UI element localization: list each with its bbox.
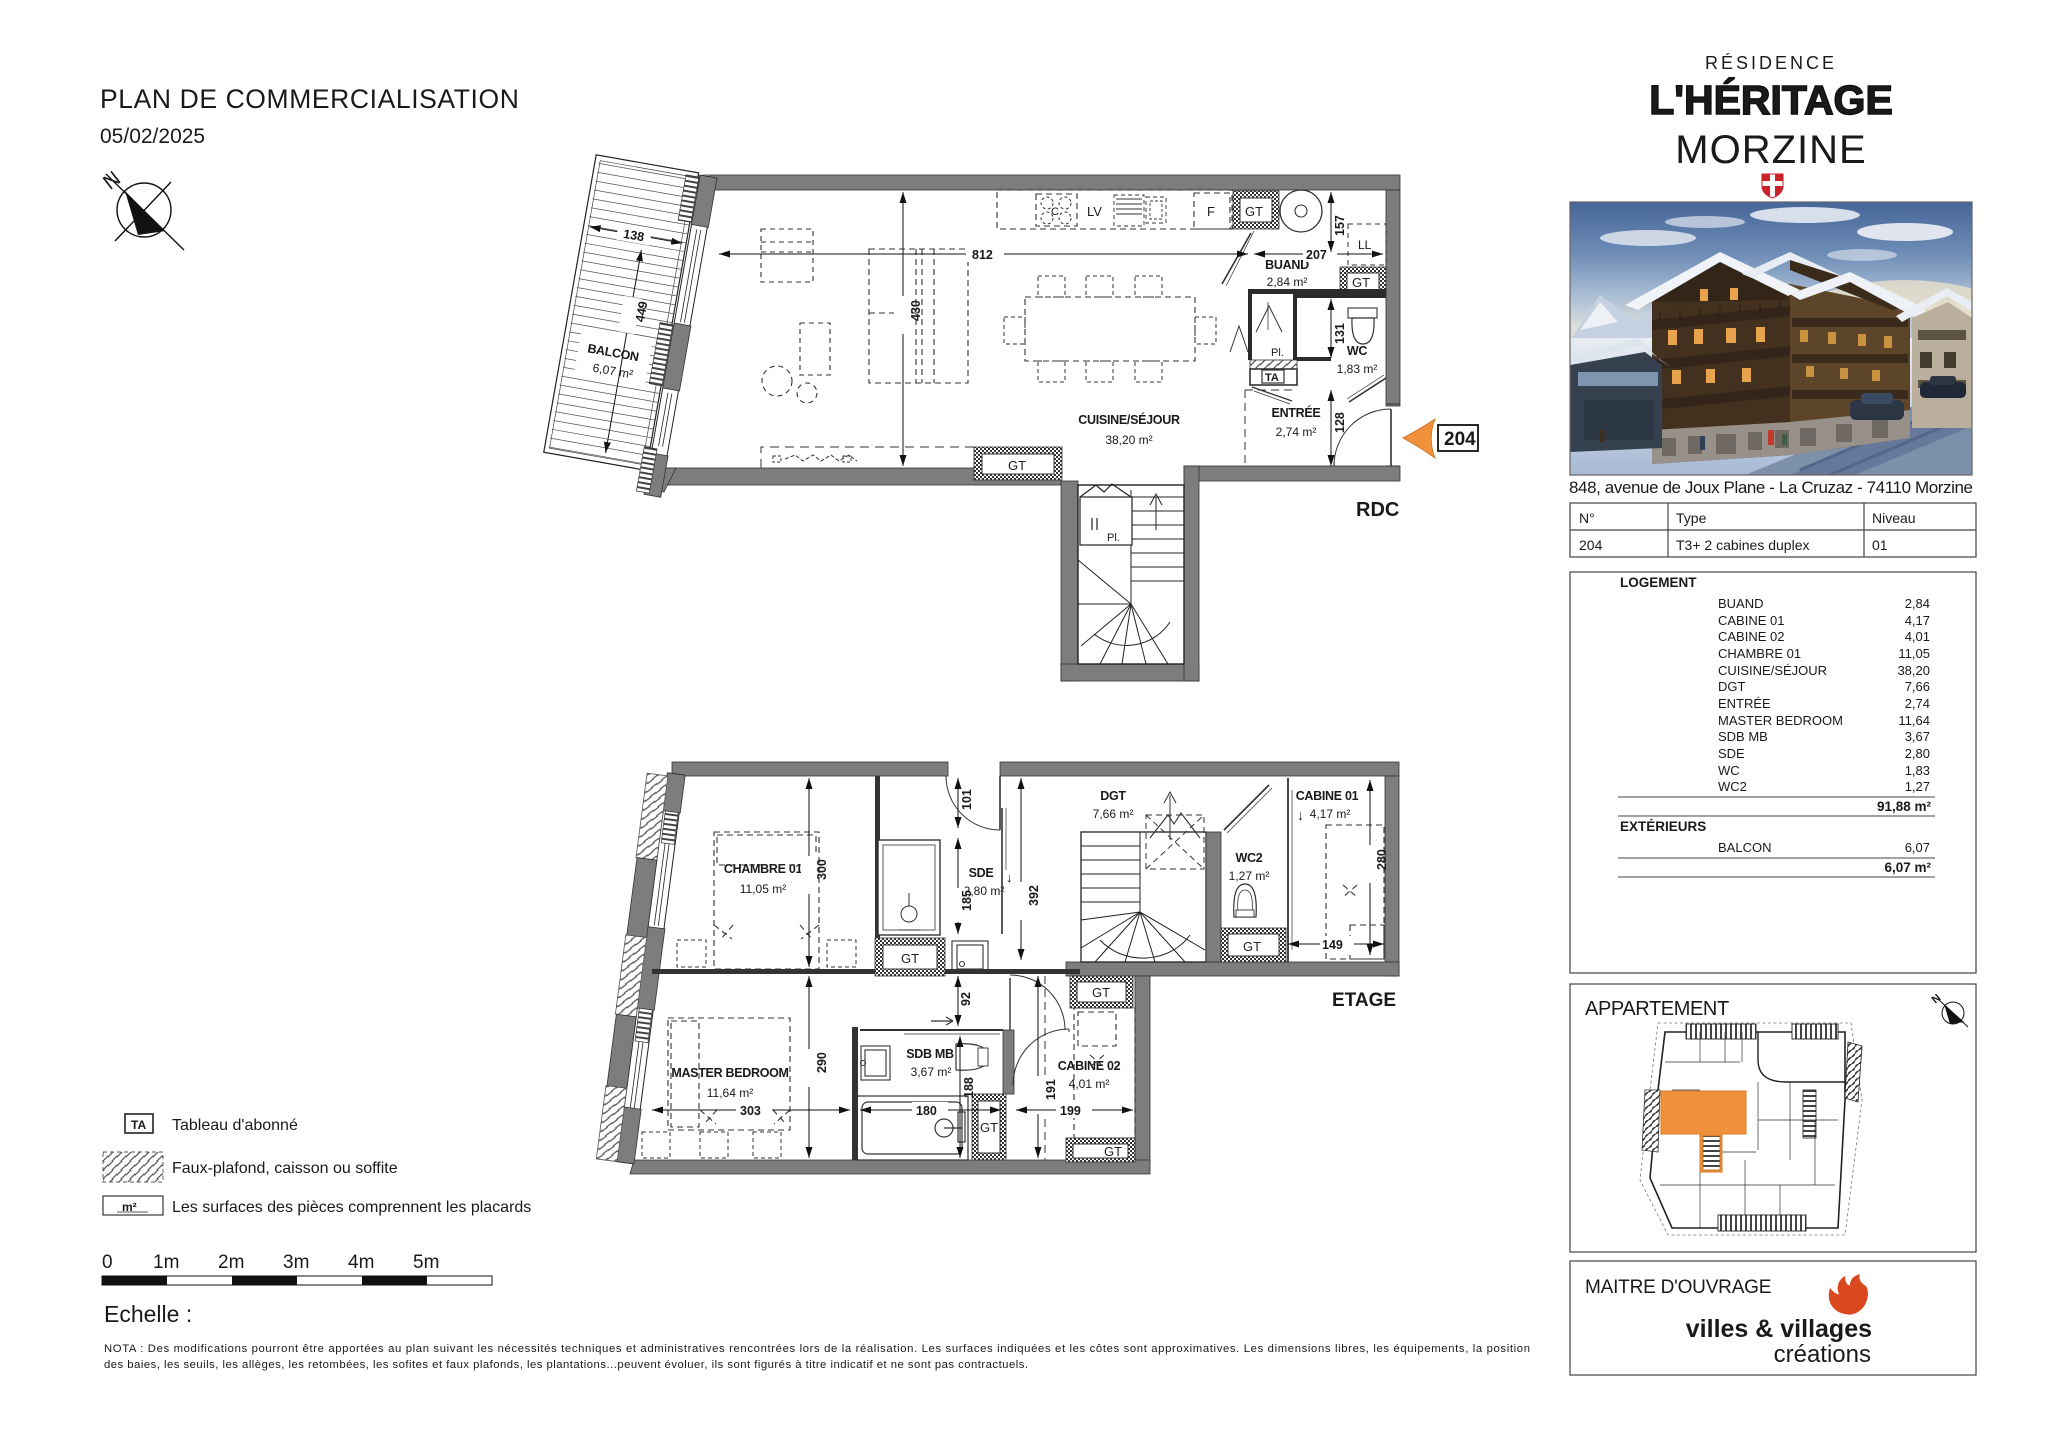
svg-text:CHAMBRE 01: CHAMBRE 01: [724, 862, 803, 876]
svg-text:↓: ↓: [1006, 870, 1013, 885]
svg-text:DGT: DGT: [1718, 679, 1746, 694]
svg-text:Pl.: Pl.: [1271, 347, 1284, 359]
svg-text:TA: TA: [131, 1118, 146, 1132]
svg-text:3m: 3m: [283, 1252, 309, 1273]
svg-text:WC: WC: [1718, 763, 1740, 778]
svg-text:207: 207: [1306, 248, 1327, 262]
svg-text:CUISINE/SÉJOUR: CUISINE/SÉJOUR: [1078, 412, 1180, 427]
svg-text:4,01: 4,01: [1905, 629, 1930, 644]
svg-text:LL: LL: [1358, 238, 1372, 252]
svg-text:4,01 m²: 4,01 m²: [1069, 1077, 1110, 1091]
svg-text:6,07 m²: 6,07 m²: [1884, 860, 1931, 875]
svg-text:Niveau: Niveau: [1872, 510, 1916, 526]
svg-text:ENTRÉE: ENTRÉE: [1272, 405, 1321, 420]
svg-text:4,17: 4,17: [1905, 613, 1930, 628]
svg-text:WC2: WC2: [1718, 779, 1747, 794]
svg-text:BALCON: BALCON: [1718, 840, 1771, 855]
svg-text:1,27 m²: 1,27 m²: [1229, 869, 1270, 883]
svg-text:LOGEMENT: LOGEMENT: [1620, 575, 1697, 590]
svg-text:WC: WC: [1347, 344, 1367, 358]
svg-text:4m: 4m: [348, 1252, 374, 1273]
svg-text:GT: GT: [1245, 204, 1263, 219]
svg-text:RÉSIDENCE: RÉSIDENCE: [1705, 53, 1837, 73]
svg-text:ETAGE: ETAGE: [1332, 990, 1396, 1011]
svg-text:303: 303: [740, 1104, 761, 1118]
svg-text:11,05: 11,05: [1898, 646, 1930, 661]
svg-text:1m: 1m: [153, 1252, 179, 1273]
svg-text:149: 149: [1322, 938, 1343, 952]
svg-text:204: 204: [1444, 429, 1476, 450]
svg-text:Tableau d'abonné: Tableau d'abonné: [172, 1117, 298, 1134]
svg-text:DGT: DGT: [1100, 789, 1126, 803]
svg-text:430: 430: [909, 300, 923, 321]
svg-text:↓: ↓: [1297, 807, 1304, 823]
svg-text:05/02/2025: 05/02/2025: [100, 125, 205, 148]
svg-text:APPARTEMENT: APPARTEMENT: [1585, 998, 1729, 1020]
svg-text:GT: GT: [980, 1120, 998, 1135]
svg-text:Pl.: Pl.: [1107, 532, 1120, 544]
svg-text:2m: 2m: [218, 1252, 244, 1273]
svg-text:GT: GT: [901, 951, 919, 966]
svg-text:7,66 m²: 7,66 m²: [1093, 807, 1134, 821]
svg-text:11,64 m²: 11,64 m²: [707, 1086, 753, 1100]
svg-text:1,83: 1,83: [1905, 763, 1930, 778]
svg-text:300: 300: [815, 859, 829, 880]
svg-text:2,84 m²: 2,84 m²: [1267, 275, 1308, 289]
svg-text:392: 392: [1027, 885, 1041, 906]
svg-text:des baies, les seuils, les all: des baies, les seuils, les allèges, les …: [104, 1359, 1028, 1371]
svg-text:199: 199: [1060, 1104, 1081, 1118]
svg-text:PLAN DE COMMERCIALISATION: PLAN DE COMMERCIALISATION: [100, 84, 519, 114]
svg-text:1,27: 1,27: [1905, 779, 1930, 794]
svg-text:131: 131: [1333, 323, 1347, 344]
svg-text:Faux-plafond, caisson ou soffi: Faux-plafond, caisson ou soffite: [172, 1160, 398, 1177]
svg-text:101: 101: [960, 789, 974, 810]
svg-text:NOTA : Des modifications pourr: NOTA : Des modifications pourront être a…: [104, 1343, 1530, 1355]
svg-text:157: 157: [1333, 215, 1347, 236]
svg-text:191: 191: [1044, 1079, 1058, 1100]
svg-text:GT: GT: [1243, 939, 1261, 954]
svg-text:38,20: 38,20: [1897, 663, 1930, 678]
svg-text:L'HÉRITAGE: L'HÉRITAGE: [1649, 77, 1893, 123]
svg-text:BUAND: BUAND: [1718, 596, 1764, 611]
svg-text:WC2: WC2: [1236, 851, 1263, 865]
svg-text:2,74: 2,74: [1905, 696, 1930, 711]
svg-text:7,66: 7,66: [1905, 679, 1930, 694]
svg-text:38,20 m²: 38,20 m²: [1105, 433, 1152, 447]
svg-text:C: C: [1051, 206, 1059, 218]
svg-text:CABINE 02: CABINE 02: [1058, 1059, 1121, 1073]
svg-text:CABINE 02: CABINE 02: [1718, 629, 1784, 644]
svg-text:LV: LV: [1087, 204, 1102, 219]
svg-text:GT: GT: [1352, 275, 1370, 290]
svg-text:4,17 m²: 4,17 m²: [1310, 807, 1351, 821]
svg-text:RDC: RDC: [1356, 499, 1399, 521]
svg-text:848, avenue de Joux Plane - La: 848, avenue de Joux Plane - La Cruzaz - …: [1569, 478, 1973, 497]
svg-text:280: 280: [1375, 849, 1389, 870]
svg-text:Type: Type: [1676, 510, 1707, 526]
svg-text:N°: N°: [1579, 510, 1595, 526]
svg-text:MASTER BEDROOM: MASTER BEDROOM: [1718, 713, 1843, 728]
svg-text:5m: 5m: [413, 1252, 439, 1273]
svg-text:GT: GT: [1104, 1144, 1122, 1159]
svg-text:ENTRÉE: ENTRÉE: [1718, 696, 1771, 711]
svg-text:GT: GT: [1092, 985, 1110, 1000]
svg-text:6,07: 6,07: [1905, 840, 1930, 855]
svg-text:MORZINE: MORZINE: [1675, 128, 1866, 172]
svg-text:MASTER BEDROOM: MASTER BEDROOM: [671, 1066, 788, 1080]
svg-text:2,74 m²: 2,74 m²: [1276, 425, 1317, 439]
svg-text:Echelle :: Echelle :: [104, 1301, 192, 1327]
svg-text:CHAMBRE 01: CHAMBRE 01: [1718, 646, 1801, 661]
svg-text:2,84: 2,84: [1905, 596, 1930, 611]
svg-text:TA: TA: [1265, 372, 1279, 384]
svg-text:EXTÉRIEURS: EXTÉRIEURS: [1620, 819, 1706, 834]
svg-text:villes & villages: villes & villages: [1686, 1315, 1872, 1343]
svg-text:CUISINE/SÉJOUR: CUISINE/SÉJOUR: [1718, 663, 1827, 678]
svg-text:SDB MB: SDB MB: [906, 1047, 954, 1061]
svg-text:CABINE 01: CABINE 01: [1296, 789, 1359, 803]
svg-text:92: 92: [959, 992, 973, 1006]
svg-text:128: 128: [1333, 412, 1347, 433]
svg-text:SDE: SDE: [1718, 746, 1745, 761]
svg-text:01: 01: [1872, 537, 1888, 553]
svg-text:BUAND: BUAND: [1265, 258, 1309, 272]
svg-text:11,05 m²: 11,05 m²: [740, 882, 786, 896]
svg-text:290: 290: [815, 1052, 829, 1073]
svg-text:CABINE 01: CABINE 01: [1718, 613, 1784, 628]
svg-text:Les surfaces des pièces compre: Les surfaces des pièces comprennent les …: [172, 1199, 531, 1216]
svg-text:11,64: 11,64: [1898, 713, 1930, 728]
svg-text:3,67: 3,67: [1905, 729, 1930, 744]
svg-text:MAITRE D'OUVRAGE: MAITRE D'OUVRAGE: [1585, 1277, 1771, 1298]
svg-text:F: F: [1207, 204, 1215, 219]
svg-text:185: 185: [960, 890, 974, 911]
svg-text:812: 812: [972, 248, 993, 262]
svg-text:188: 188: [962, 1077, 976, 1098]
svg-text:SDB MB: SDB MB: [1718, 729, 1768, 744]
svg-text:créations: créations: [1774, 1341, 1871, 1368]
svg-text:180: 180: [916, 1104, 937, 1118]
svg-text:3,67 m²: 3,67 m²: [911, 1065, 952, 1079]
svg-text:SDE: SDE: [969, 866, 994, 880]
svg-text:1,83 m²: 1,83 m²: [1337, 362, 1378, 376]
svg-text:91,88 m²: 91,88 m²: [1877, 799, 1932, 814]
svg-text:2,80: 2,80: [1905, 746, 1930, 761]
svg-text:0: 0: [102, 1252, 113, 1273]
svg-text:204: 204: [1579, 537, 1603, 553]
svg-text:T3+ 2 cabines duplex: T3+ 2 cabines duplex: [1676, 537, 1809, 553]
svg-text:GT: GT: [1008, 458, 1026, 473]
